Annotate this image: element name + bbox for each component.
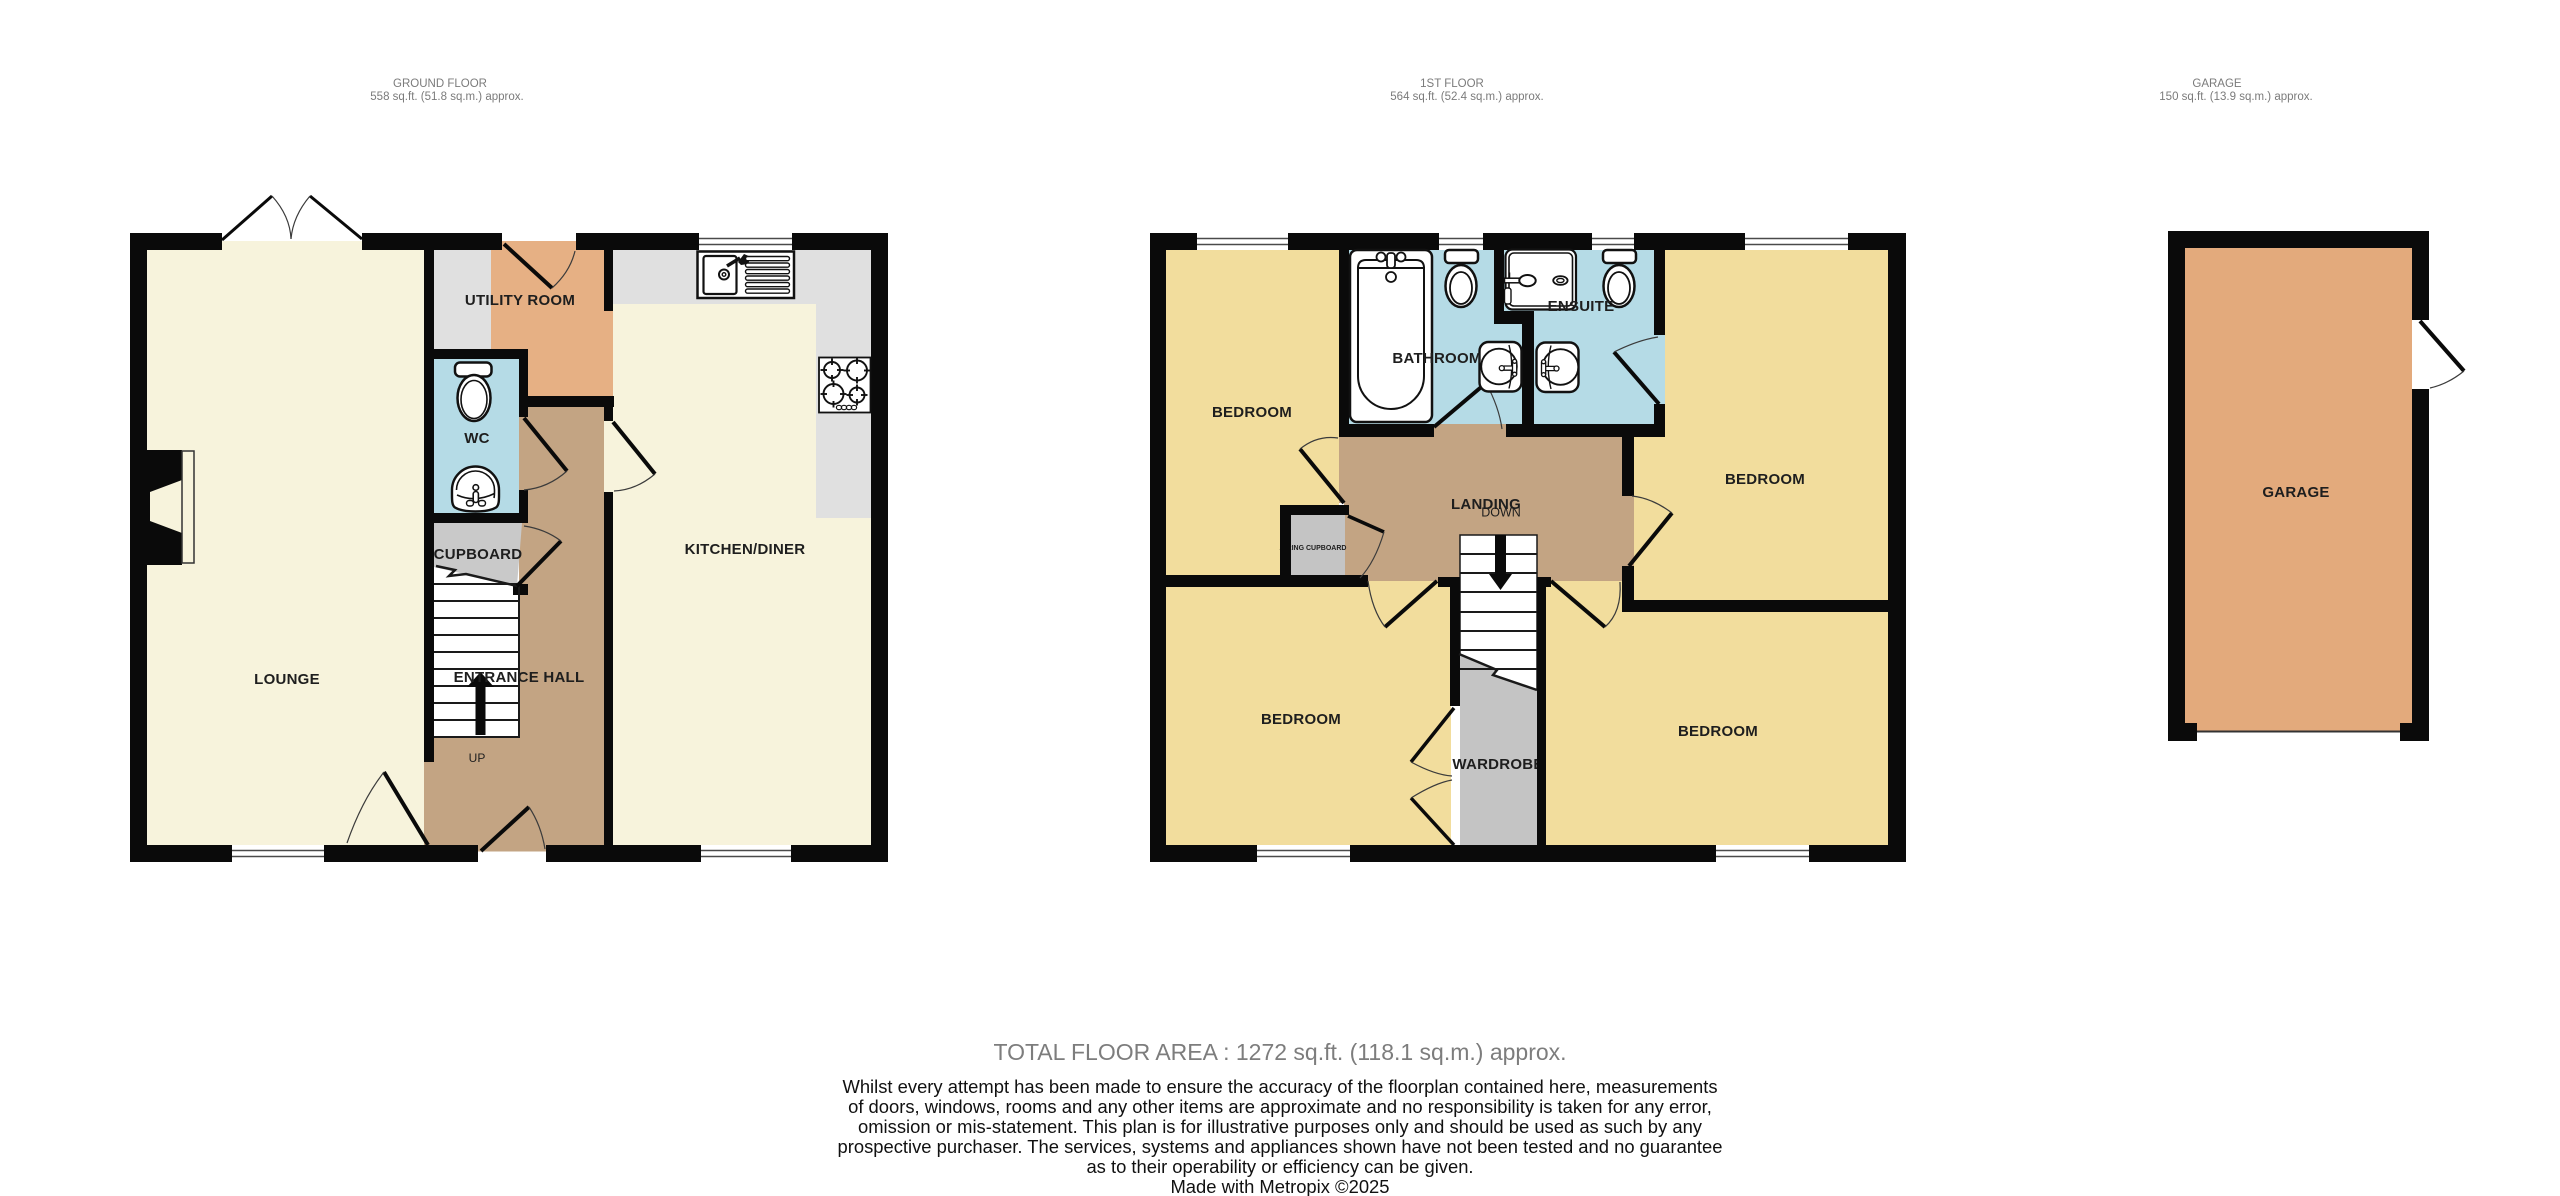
svg-text:558 sq.ft. (51.8 sq.m.) approx: 558 sq.ft. (51.8 sq.m.) approx.	[370, 91, 523, 103]
svg-text:564 sq.ft. (52.4 sq.m.) approx: 564 sq.ft. (52.4 sq.m.) approx.	[1390, 91, 1543, 103]
svg-text:CUPBOARD: CUPBOARD	[434, 546, 523, 563]
svg-text:UTILITY ROOM: UTILITY ROOM	[465, 292, 575, 309]
svg-text:Made with Metropix ©2025: Made with Metropix ©2025	[1170, 1176, 1389, 1196]
svg-text:DOWN: DOWN	[1481, 506, 1521, 520]
svg-text:as to their operability or eff: as to their operability or efficiency ca…	[1086, 1156, 1473, 1177]
svg-text:GARAGE: GARAGE	[2262, 484, 2329, 501]
svg-text:UP: UP	[469, 751, 486, 765]
svg-text:BEDROOM: BEDROOM	[1212, 404, 1292, 421]
svg-text:GARAGE: GARAGE	[2192, 78, 2242, 90]
svg-text:1ST FLOOR: 1ST FLOOR	[1420, 78, 1484, 90]
svg-text:KITCHEN/DINER: KITCHEN/DINER	[685, 541, 806, 558]
svg-text:GROUND FLOOR: GROUND FLOOR	[393, 78, 487, 90]
svg-text:BEDROOM: BEDROOM	[1678, 723, 1758, 740]
svg-text:WARDROBE: WARDROBE	[1452, 756, 1543, 773]
svg-text:BATHROOM: BATHROOM	[1392, 350, 1481, 367]
svg-text:BEDROOM: BEDROOM	[1261, 711, 1341, 728]
svg-text:omission or mis-statement. Thi: omission or mis-statement. This plan is …	[858, 1116, 1703, 1137]
svg-text:LOUNGE: LOUNGE	[254, 671, 320, 688]
svg-text:Whilst every attempt has been: Whilst every attempt has been made to en…	[842, 1076, 1717, 1097]
svg-text:TOTAL FLOOR AREA : 1272 sq.ft.: TOTAL FLOOR AREA : 1272 sq.ft. (118.1 sq…	[993, 1039, 1566, 1065]
svg-text:ENTRANCE HALL: ENTRANCE HALL	[454, 669, 585, 686]
svg-text:WC: WC	[464, 430, 490, 447]
svg-text:of doors, windows, rooms and a: of doors, windows, rooms and any other i…	[848, 1096, 1712, 1117]
svg-text:150 sq.ft. (13.9 sq.m.) approx: 150 sq.ft. (13.9 sq.m.) approx.	[2159, 91, 2312, 103]
svg-text:BEDROOM: BEDROOM	[1725, 471, 1805, 488]
svg-text:ENSUITE: ENSUITE	[1548, 298, 1615, 315]
svg-text:prospective purchaser. The ser: prospective purchaser. The services, sys…	[837, 1136, 1722, 1157]
